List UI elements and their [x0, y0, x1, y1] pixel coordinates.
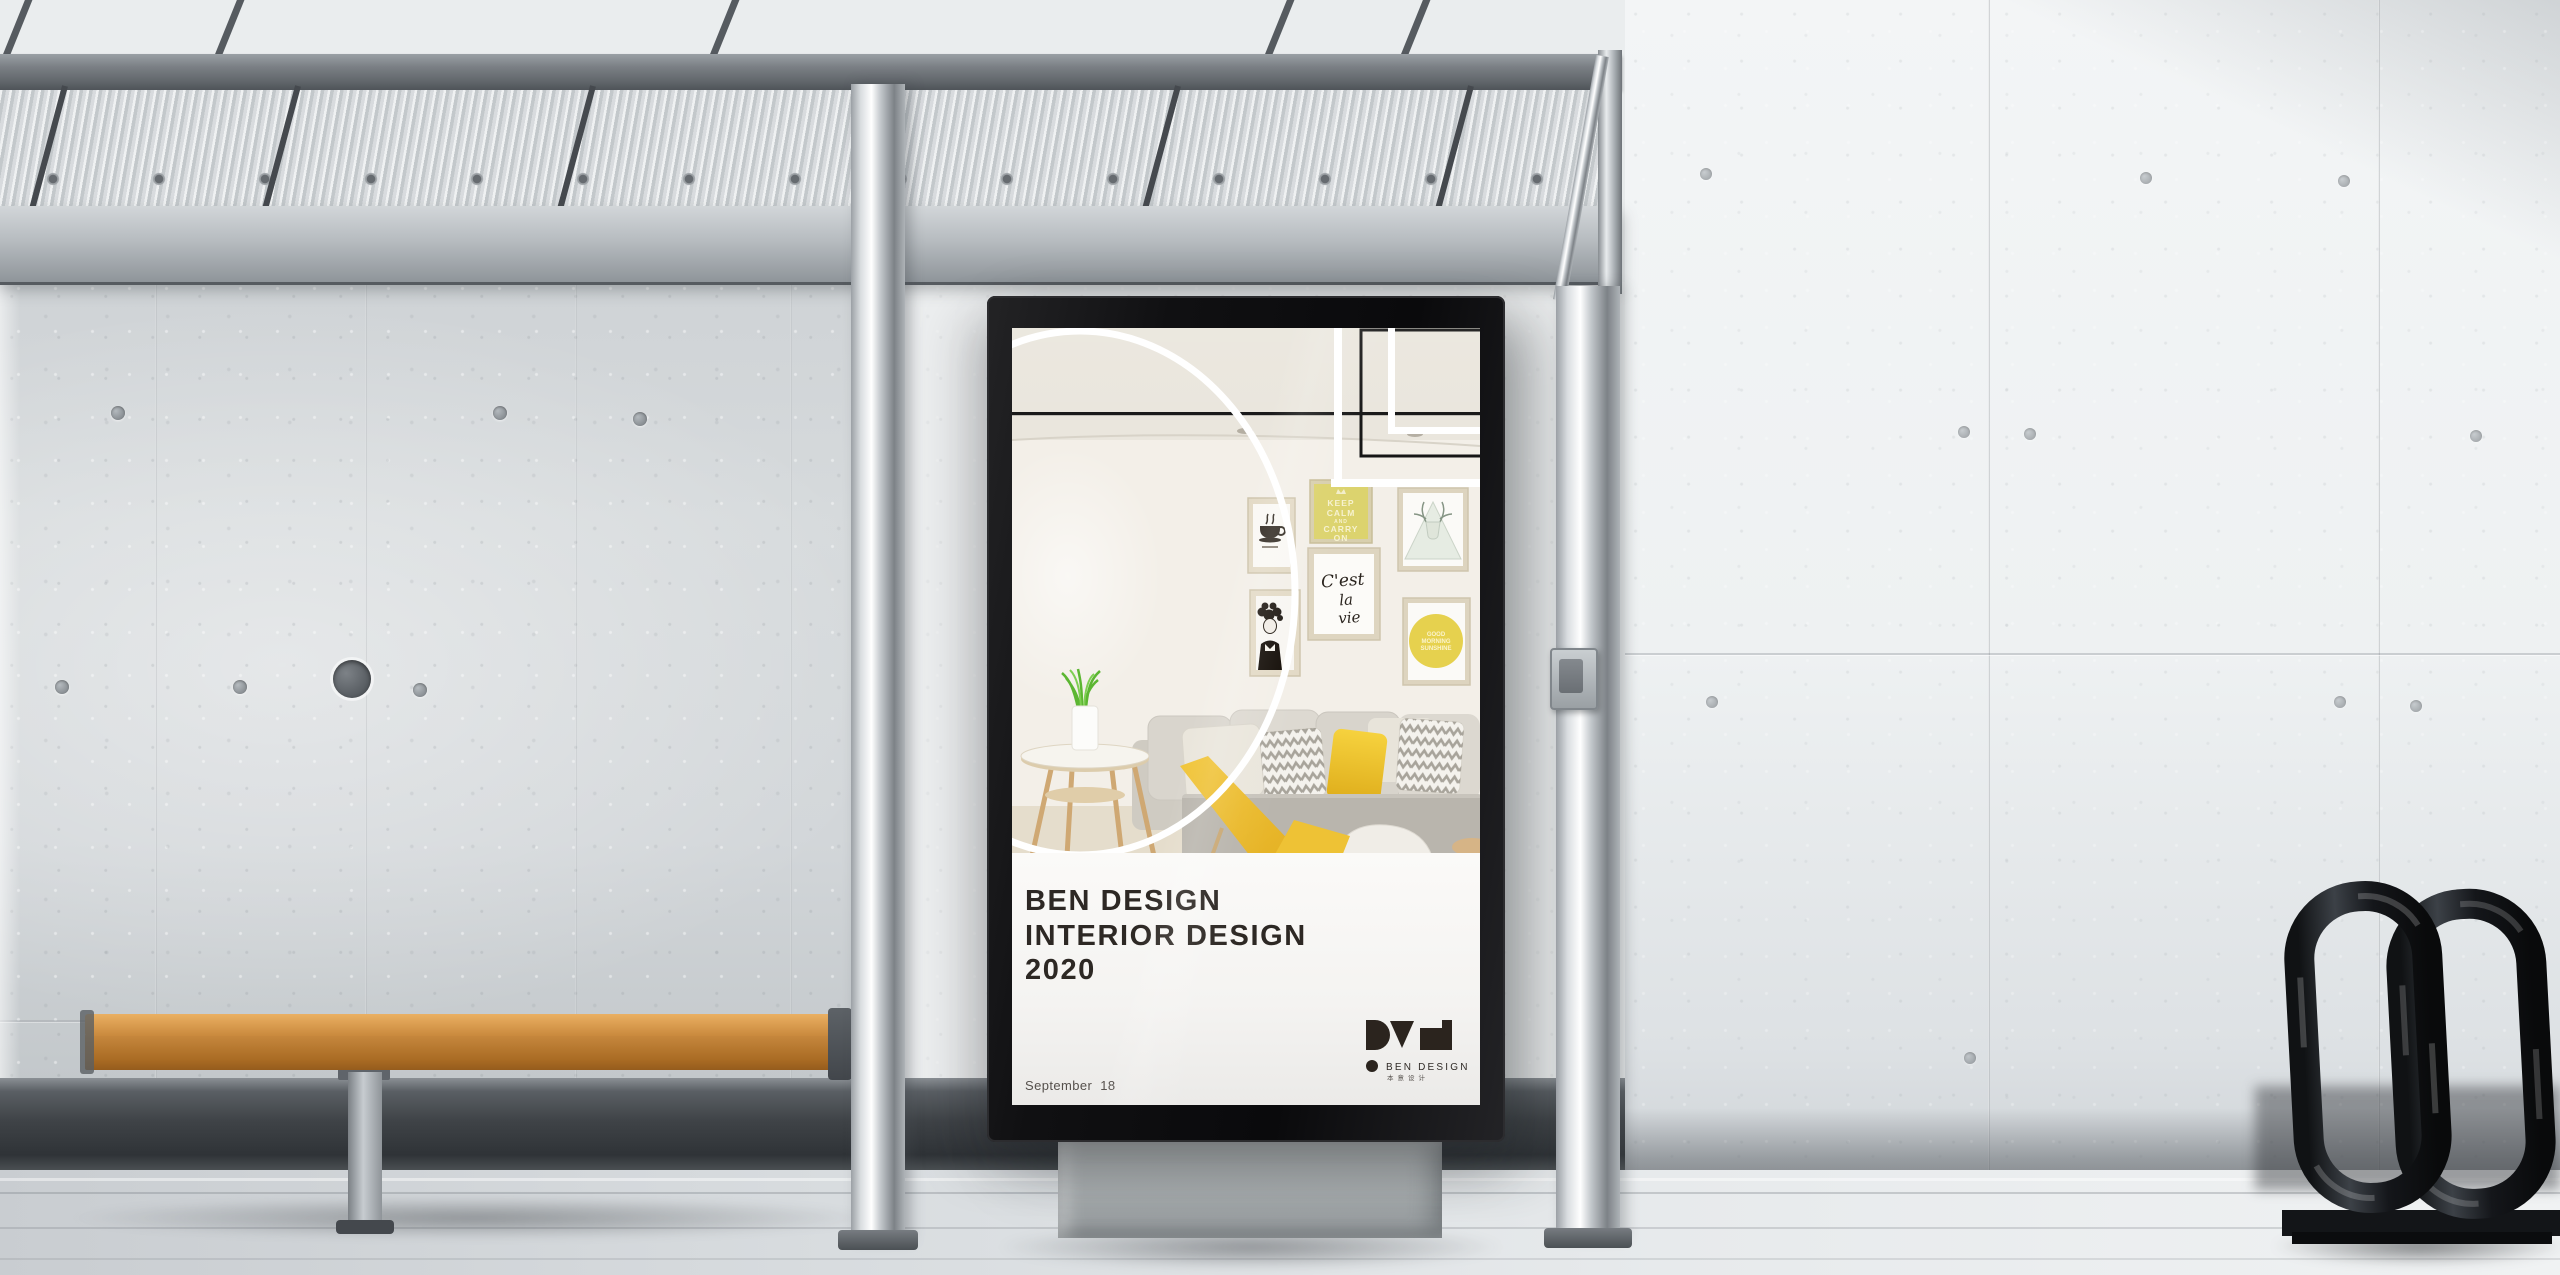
poster-plinth — [1058, 1142, 1442, 1238]
bus-stop-scene: KEEP CALM AND CARRY ON C'est la vie — [0, 0, 2560, 1275]
pole-base — [1544, 1228, 1632, 1248]
poster-title: BEN DESIGN INTERIOR DESIGN 2020 — [1025, 884, 1307, 988]
keep-calm-line: CALM — [1327, 508, 1356, 518]
canopy-fascia — [0, 206, 1622, 282]
bench-leg — [348, 1072, 382, 1228]
poster-date: September 18 2020 — [1025, 1043, 1115, 1105]
logo-dot-icon — [1366, 1060, 1378, 1072]
poster-artwork: KEEP CALM AND CARRY ON C'est la vie — [1012, 328, 1480, 1105]
wall-panel-seam — [1988, 0, 1990, 1190]
bench-leg-foot — [336, 1220, 394, 1234]
bench-seat-top — [85, 1014, 847, 1036]
sunshine-line: GOOD — [1427, 632, 1446, 638]
poster-text-band: BEN DESIGN INTERIOR DESIGN 2020 Septembe… — [1012, 853, 1480, 1105]
poster-white-line — [1388, 427, 1480, 434]
wall-tie-hole — [413, 683, 427, 697]
wall-tie-hole — [2024, 428, 2036, 440]
wall-tie-hole — [2338, 175, 2350, 187]
sunshine-line: MORNING — [1422, 639, 1451, 645]
deer-head — [1426, 522, 1440, 539]
wall-tie-hole — [493, 406, 507, 420]
canopy-ribbed-underside — [0, 90, 1622, 208]
pillow-chevron — [1259, 727, 1327, 800]
wall-tie-hole — [111, 406, 125, 420]
cest-la-vie-line: la — [1339, 590, 1354, 609]
wall-above-canopy — [0, 0, 1625, 58]
poster-date-line: September 18 — [1025, 1077, 1115, 1094]
pole-base — [838, 1230, 918, 1250]
logo-wordmark: BEN DESIGN — [1386, 1062, 1470, 1073]
pillow-yellow — [1326, 728, 1388, 804]
bench-end-cap — [828, 1008, 852, 1080]
wall-tie-hole — [1706, 696, 1718, 708]
poster-title-line: BEN DESIGN — [1025, 884, 1307, 919]
shelter-left-edge-highlight — [0, 282, 20, 1080]
wall-tie-hole — [2334, 696, 2346, 708]
poster-white-line — [1334, 328, 1342, 486]
logo-chinese-text: 本意设计 — [1387, 1073, 1429, 1082]
wall-panel-seam — [575, 282, 577, 1080]
pole-control-box — [1550, 648, 1598, 710]
wall-tie-hole — [55, 680, 69, 694]
poster-title-line: 2020 — [1025, 953, 1307, 988]
poster-black-line — [1012, 412, 1480, 415]
logo-mark-triangle-icon — [1390, 1021, 1414, 1048]
wall-tie-hole — [2140, 172, 2152, 184]
lightbox-poster: KEEP CALM AND CARRY ON C'est la vie — [987, 296, 1505, 1142]
gallery-frame-sunshine: GOOD MORNING SUNSHINE — [1403, 598, 1470, 685]
rack-base-foot — [2292, 1232, 2552, 1244]
control-box-panel — [1559, 659, 1583, 693]
shelter-pole — [851, 84, 905, 1240]
wall-tie-hole-large — [333, 660, 371, 698]
wall-panel-seam — [1625, 653, 2560, 655]
wall-tie-hole — [633, 412, 647, 426]
gallery-frame-keep-calm: KEEP CALM AND CARRY ON — [1310, 480, 1372, 543]
canopy-top-beam — [0, 54, 1622, 90]
pillow-chevron — [1396, 718, 1465, 794]
rack-ring — [2296, 893, 2440, 1201]
cest-la-vie-line: C'est — [1321, 570, 1366, 593]
brand-logo: BEN DESIGN 本意设计 — [1364, 1018, 1470, 1082]
concrete-back-wall — [0, 282, 882, 1080]
logo-mark-d-icon — [1366, 1020, 1390, 1050]
wall-panel-seam — [155, 282, 157, 1080]
table-shelf — [1045, 787, 1125, 803]
sunshine-line: SUNSHINE — [1420, 646, 1451, 652]
keep-calm-line: KEEP — [1327, 498, 1354, 508]
portrait-bust — [1258, 641, 1282, 671]
cest-la-vie-line: vie — [1338, 608, 1361, 628]
logo-mark-square-icon — [1420, 1020, 1452, 1050]
bench-shadow — [64, 1196, 884, 1240]
wall-texture — [0, 282, 882, 1080]
shelter-pole — [1556, 286, 1620, 1238]
poster-photo: KEEP CALM AND CARRY ON C'est la vie — [1012, 328, 1480, 858]
gallery-frame-cest-la-vie: C'est la vie — [1308, 548, 1380, 640]
wall-tie-hole — [2410, 700, 2422, 712]
bench-end-cap — [80, 1010, 94, 1074]
bike-rack — [2282, 878, 2560, 1274]
plant-pot — [1072, 706, 1098, 750]
wall-tie-hole — [1958, 426, 1970, 438]
poster-white-line — [1331, 479, 1480, 487]
poster-title-line: INTERIOR DESIGN — [1025, 919, 1307, 954]
wall-panel-seam — [790, 282, 792, 1080]
wall-tie-hole — [1964, 1052, 1976, 1064]
portrait-face — [1264, 619, 1277, 634]
wall-tie-hole — [2470, 430, 2482, 442]
bench-seat-front — [85, 1034, 847, 1070]
wall-tie-hole — [233, 680, 247, 694]
gallery-frame-deer — [1398, 488, 1468, 571]
keep-calm-line: ON — [1334, 533, 1349, 543]
wall-tie-hole — [1700, 168, 1712, 180]
poster-white-line — [1388, 328, 1395, 434]
